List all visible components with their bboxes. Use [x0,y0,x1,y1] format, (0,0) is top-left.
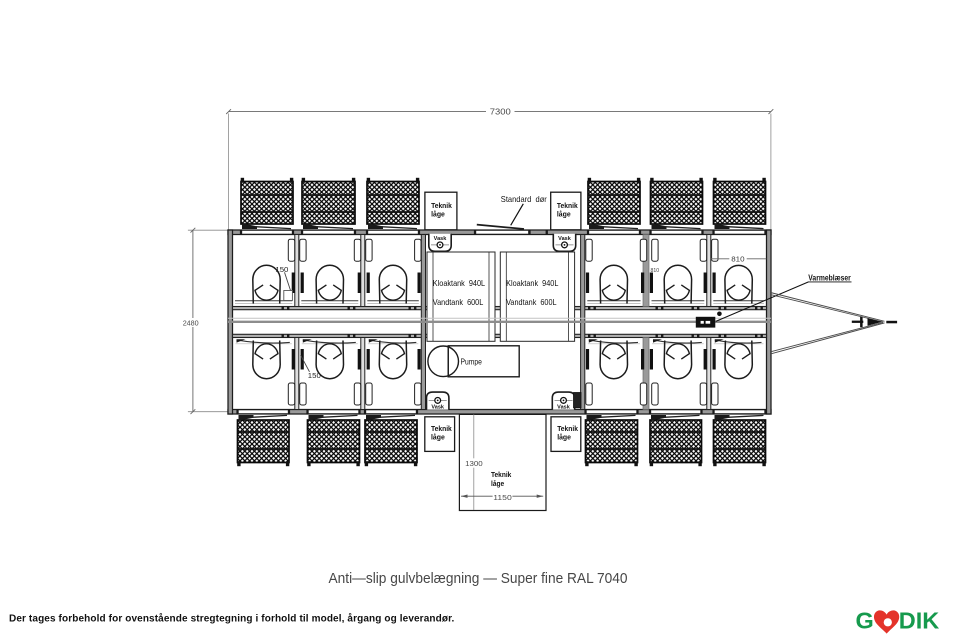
svg-text:låge: låge [431,210,445,219]
svg-text:810: 810 [731,255,744,264]
svg-text:Vask: Vask [557,404,570,410]
svg-text:1150: 1150 [493,493,512,502]
svg-text:150: 150 [308,371,321,380]
svg-text:Teknik: Teknik [557,424,578,433]
svg-text:Vask: Vask [434,236,447,242]
svg-text:låge: låge [557,210,571,219]
svg-text:2480: 2480 [183,318,199,327]
svg-text:låge: låge [491,479,504,488]
svg-text:Anti—slip gulvbelægning — Supe: Anti—slip gulvbelægning — Super fine RAL… [329,570,628,587]
svg-text:810: 810 [651,268,660,274]
svg-text:Vask: Vask [558,236,571,242]
svg-text:Varmeblæser: Varmeblæser [808,273,851,282]
svg-text:DIK: DIK [899,608,940,634]
svg-text:150: 150 [275,265,288,274]
svg-text:Der tages forbehold for ovenst: Der tages forbehold for ovenstående stre… [9,612,455,624]
svg-text:Kloaktank 940L: Kloaktank 940L [506,278,558,288]
svg-text:låge: låge [431,433,445,442]
svg-text:Vandtank 600L: Vandtank 600L [433,297,484,307]
svg-text:Teknik: Teknik [431,201,452,210]
svg-text:Teknik: Teknik [557,201,578,210]
svg-text:låge: låge [557,433,571,442]
svg-text:Kloaktank 940L: Kloaktank 940L [433,278,485,288]
svg-text:G: G [856,608,874,634]
svg-text:7300: 7300 [490,108,512,117]
svg-text:Standard dør: Standard dør [501,195,547,204]
svg-text:Teknik: Teknik [431,424,452,433]
svg-text:Vandtank 600L: Vandtank 600L [506,297,557,307]
svg-text:1300: 1300 [465,459,483,468]
svg-text:Vask: Vask [431,404,444,410]
svg-text:Teknik: Teknik [491,470,512,479]
svg-text:Pumpe: Pumpe [461,357,483,367]
